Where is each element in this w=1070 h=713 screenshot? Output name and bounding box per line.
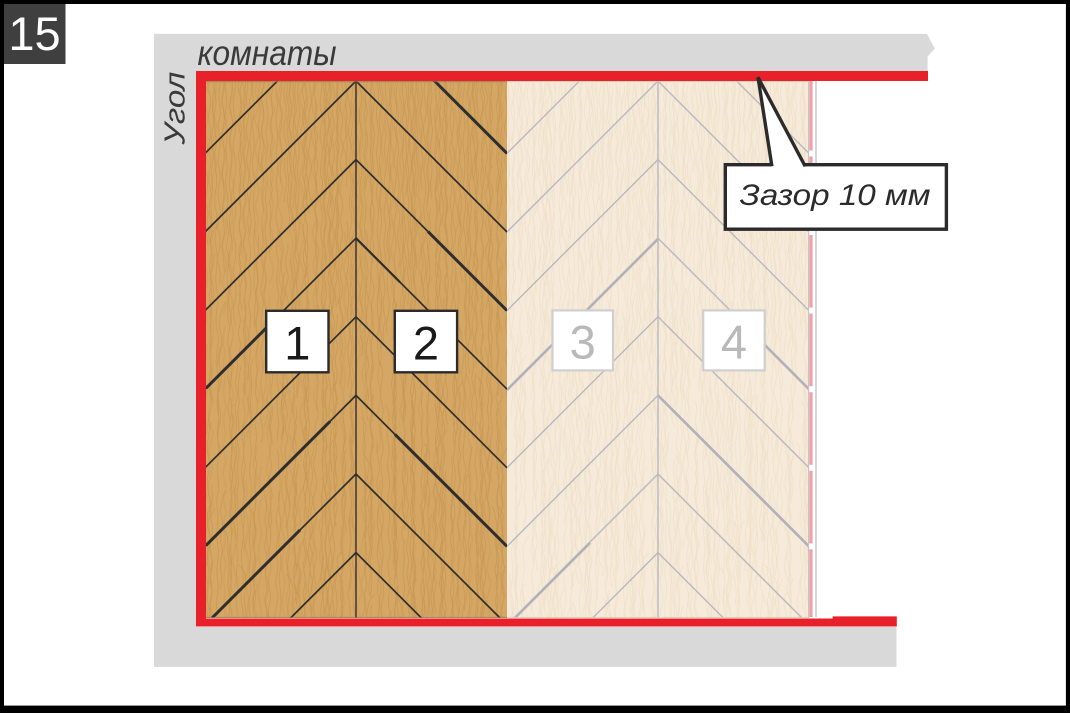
svg-text:Угол: Угол xyxy=(160,72,192,146)
svg-text:2: 2 xyxy=(413,317,439,370)
svg-text:комнаты: комнаты xyxy=(198,34,337,73)
svg-text:Зазор 10 мм: Зазор 10 мм xyxy=(740,179,931,212)
svg-text:1: 1 xyxy=(284,317,310,370)
svg-text:4: 4 xyxy=(721,316,747,369)
svg-text:3: 3 xyxy=(570,316,596,369)
svg-text:15: 15 xyxy=(8,7,60,60)
